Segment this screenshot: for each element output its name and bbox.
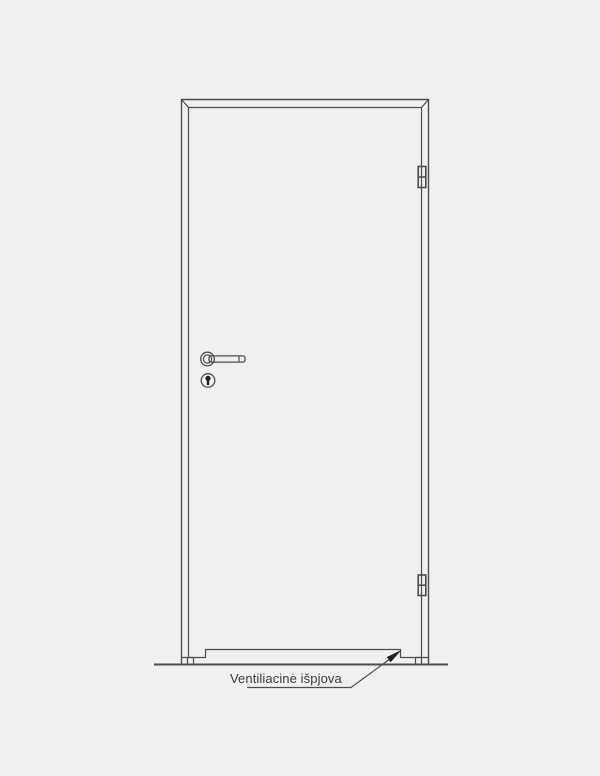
keyhole xyxy=(201,374,215,388)
ventilation-cutout xyxy=(189,650,422,658)
drawing-canvas: Ventiliacinė išpjova xyxy=(0,0,600,776)
door-frame xyxy=(182,100,429,665)
annotation-label: Ventiliacinė išpjova xyxy=(230,671,343,686)
door-handle xyxy=(201,352,245,366)
door-elevation-drawing: Ventiliacinė išpjova xyxy=(0,0,600,776)
